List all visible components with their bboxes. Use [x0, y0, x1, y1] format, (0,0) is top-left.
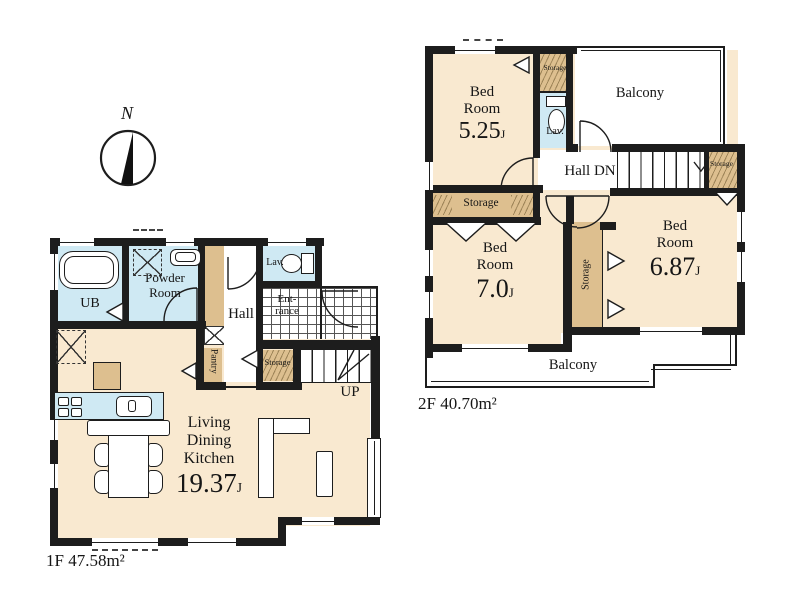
wall-segment — [425, 185, 543, 193]
wall-segment — [50, 321, 206, 329]
floorplan-canvas: N UB Powder Room Hall Lav. Ent- rance Pa… — [0, 0, 800, 600]
label-ldk: Living Dining Kitchen 19.37J — [157, 414, 261, 498]
label-ub: UB — [68, 296, 112, 312]
wall-segment — [315, 238, 322, 288]
label-balcony-bottom: Balcony — [528, 357, 618, 373]
balcony-rail — [425, 386, 655, 388]
window — [425, 292, 433, 318]
bed2-size: 7.0J — [443, 274, 547, 303]
window — [462, 344, 528, 352]
closet-strip — [204, 246, 224, 326]
label-entrance: Ent- rance — [262, 293, 312, 318]
wall-segment — [262, 281, 318, 288]
entrance-step — [320, 288, 322, 339]
label-storage-top-2f: Storage — [538, 64, 572, 72]
window — [737, 252, 745, 282]
wall-segment — [256, 340, 380, 349]
window — [425, 250, 433, 276]
wall-segment — [425, 217, 541, 225]
wall-segment — [196, 382, 226, 390]
wall-segment — [566, 196, 574, 224]
window — [737, 212, 745, 242]
label-bedroom-687: Bed Room 6.87J — [623, 218, 727, 281]
ldk-size: 19.37J — [157, 468, 261, 498]
label-bedroom-70: Bed Room 7.0J — [443, 240, 547, 303]
porch-edge-right — [376, 286, 378, 341]
compass-circle — [101, 131, 155, 185]
window — [268, 238, 306, 246]
label-lav-2f: Lav. — [539, 126, 571, 137]
bathtub-inner — [64, 256, 114, 284]
window — [425, 162, 433, 190]
window — [60, 238, 94, 246]
floor2-area-label: 2F 40.70m² — [418, 394, 618, 413]
balcony-rail — [653, 364, 737, 366]
balcony-rail — [735, 333, 737, 366]
stairs-up — [300, 349, 372, 383]
balcony-rail-inner — [431, 381, 649, 382]
label-storage-strip-2f: Storage — [446, 197, 516, 210]
label-storage-1f: Storage — [261, 358, 294, 368]
label-powder-room: Powder Room — [128, 271, 202, 300]
floor1-area-label: 1F 47.58m² — [46, 551, 246, 570]
eave-dash — [463, 39, 503, 44]
balcony-rail-inner — [730, 335, 731, 365]
powder-sink-bowl — [175, 252, 196, 262]
window-terrace — [367, 438, 381, 518]
label-storage-center-2f: Storage — [580, 243, 591, 307]
wall-segment — [425, 46, 577, 54]
compass-needle — [121, 132, 133, 184]
stove-burner — [71, 408, 82, 417]
window — [188, 538, 236, 546]
closet-box — [204, 326, 225, 345]
storage-lav-divider — [540, 91, 566, 93]
window — [50, 254, 58, 290]
stove-burner — [58, 397, 69, 406]
bed1-size: 5.25J — [430, 118, 534, 145]
bed3-size: 6.87J — [623, 252, 727, 281]
kitchen-faucet — [128, 400, 136, 412]
window — [92, 538, 158, 546]
label-balcony-top: Balcony — [598, 85, 682, 101]
wall-segment — [533, 46, 540, 158]
porch-edge-top — [322, 286, 378, 288]
window — [455, 46, 495, 54]
label-hall-dn: Hall DN — [544, 163, 636, 180]
window — [50, 420, 58, 440]
balcony-rail — [653, 364, 655, 388]
wall-segment — [50, 538, 286, 546]
floor-marker-box — [56, 330, 86, 364]
window — [166, 238, 194, 246]
window — [640, 327, 702, 335]
wall-segment — [293, 349, 300, 382]
balcony-rail — [425, 352, 427, 388]
toilet-tank — [301, 253, 314, 274]
label-pantry: Pantry — [208, 343, 219, 379]
compass-north-label: N — [112, 103, 142, 123]
room-storage-right-2f — [706, 152, 737, 188]
wall-segment — [600, 222, 616, 230]
stove-burner — [58, 408, 69, 417]
label-bedroom-525: Bed Room 5.25J — [430, 84, 534, 144]
outside-area — [318, 236, 382, 288]
room-ldk-lower — [52, 500, 282, 540]
dining-chair — [94, 470, 109, 494]
dining-table — [108, 435, 149, 498]
outside-notch — [290, 527, 390, 547]
wall-segment — [704, 152, 709, 188]
label-up: UP — [330, 384, 370, 401]
hall-threshold — [226, 386, 256, 388]
dining-chair — [94, 443, 109, 467]
eave-dash — [133, 229, 163, 234]
refrigerator — [93, 362, 121, 390]
side-table — [316, 451, 333, 497]
label-hall-1f: Hall — [222, 306, 260, 323]
wall-segment — [196, 329, 204, 390]
wall-segment — [610, 188, 745, 196]
stove-burner — [71, 397, 82, 406]
label-storage-right-2f: Storage — [705, 160, 738, 168]
window — [50, 464, 58, 488]
window — [302, 517, 334, 525]
label-lav-1f: Lav. — [261, 257, 289, 268]
balcony-rail-inner — [651, 369, 731, 370]
toilet-tank — [546, 96, 566, 107]
